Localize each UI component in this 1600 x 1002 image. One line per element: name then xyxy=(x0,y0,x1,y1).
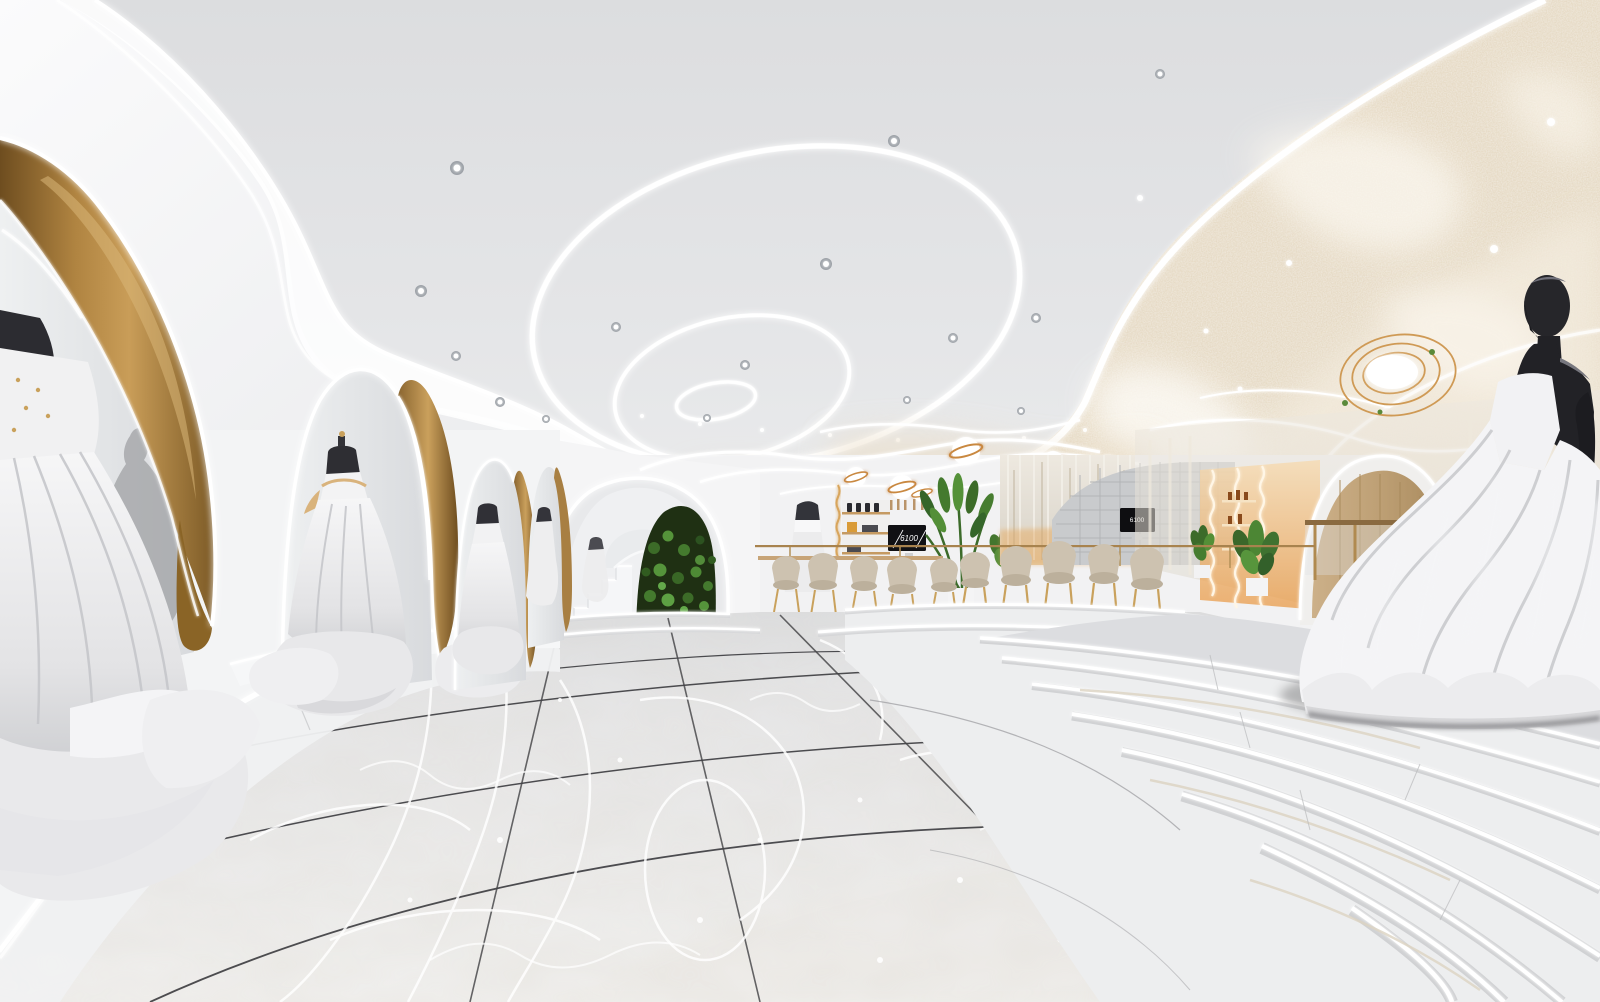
svg-text:6100: 6100 xyxy=(900,534,918,543)
